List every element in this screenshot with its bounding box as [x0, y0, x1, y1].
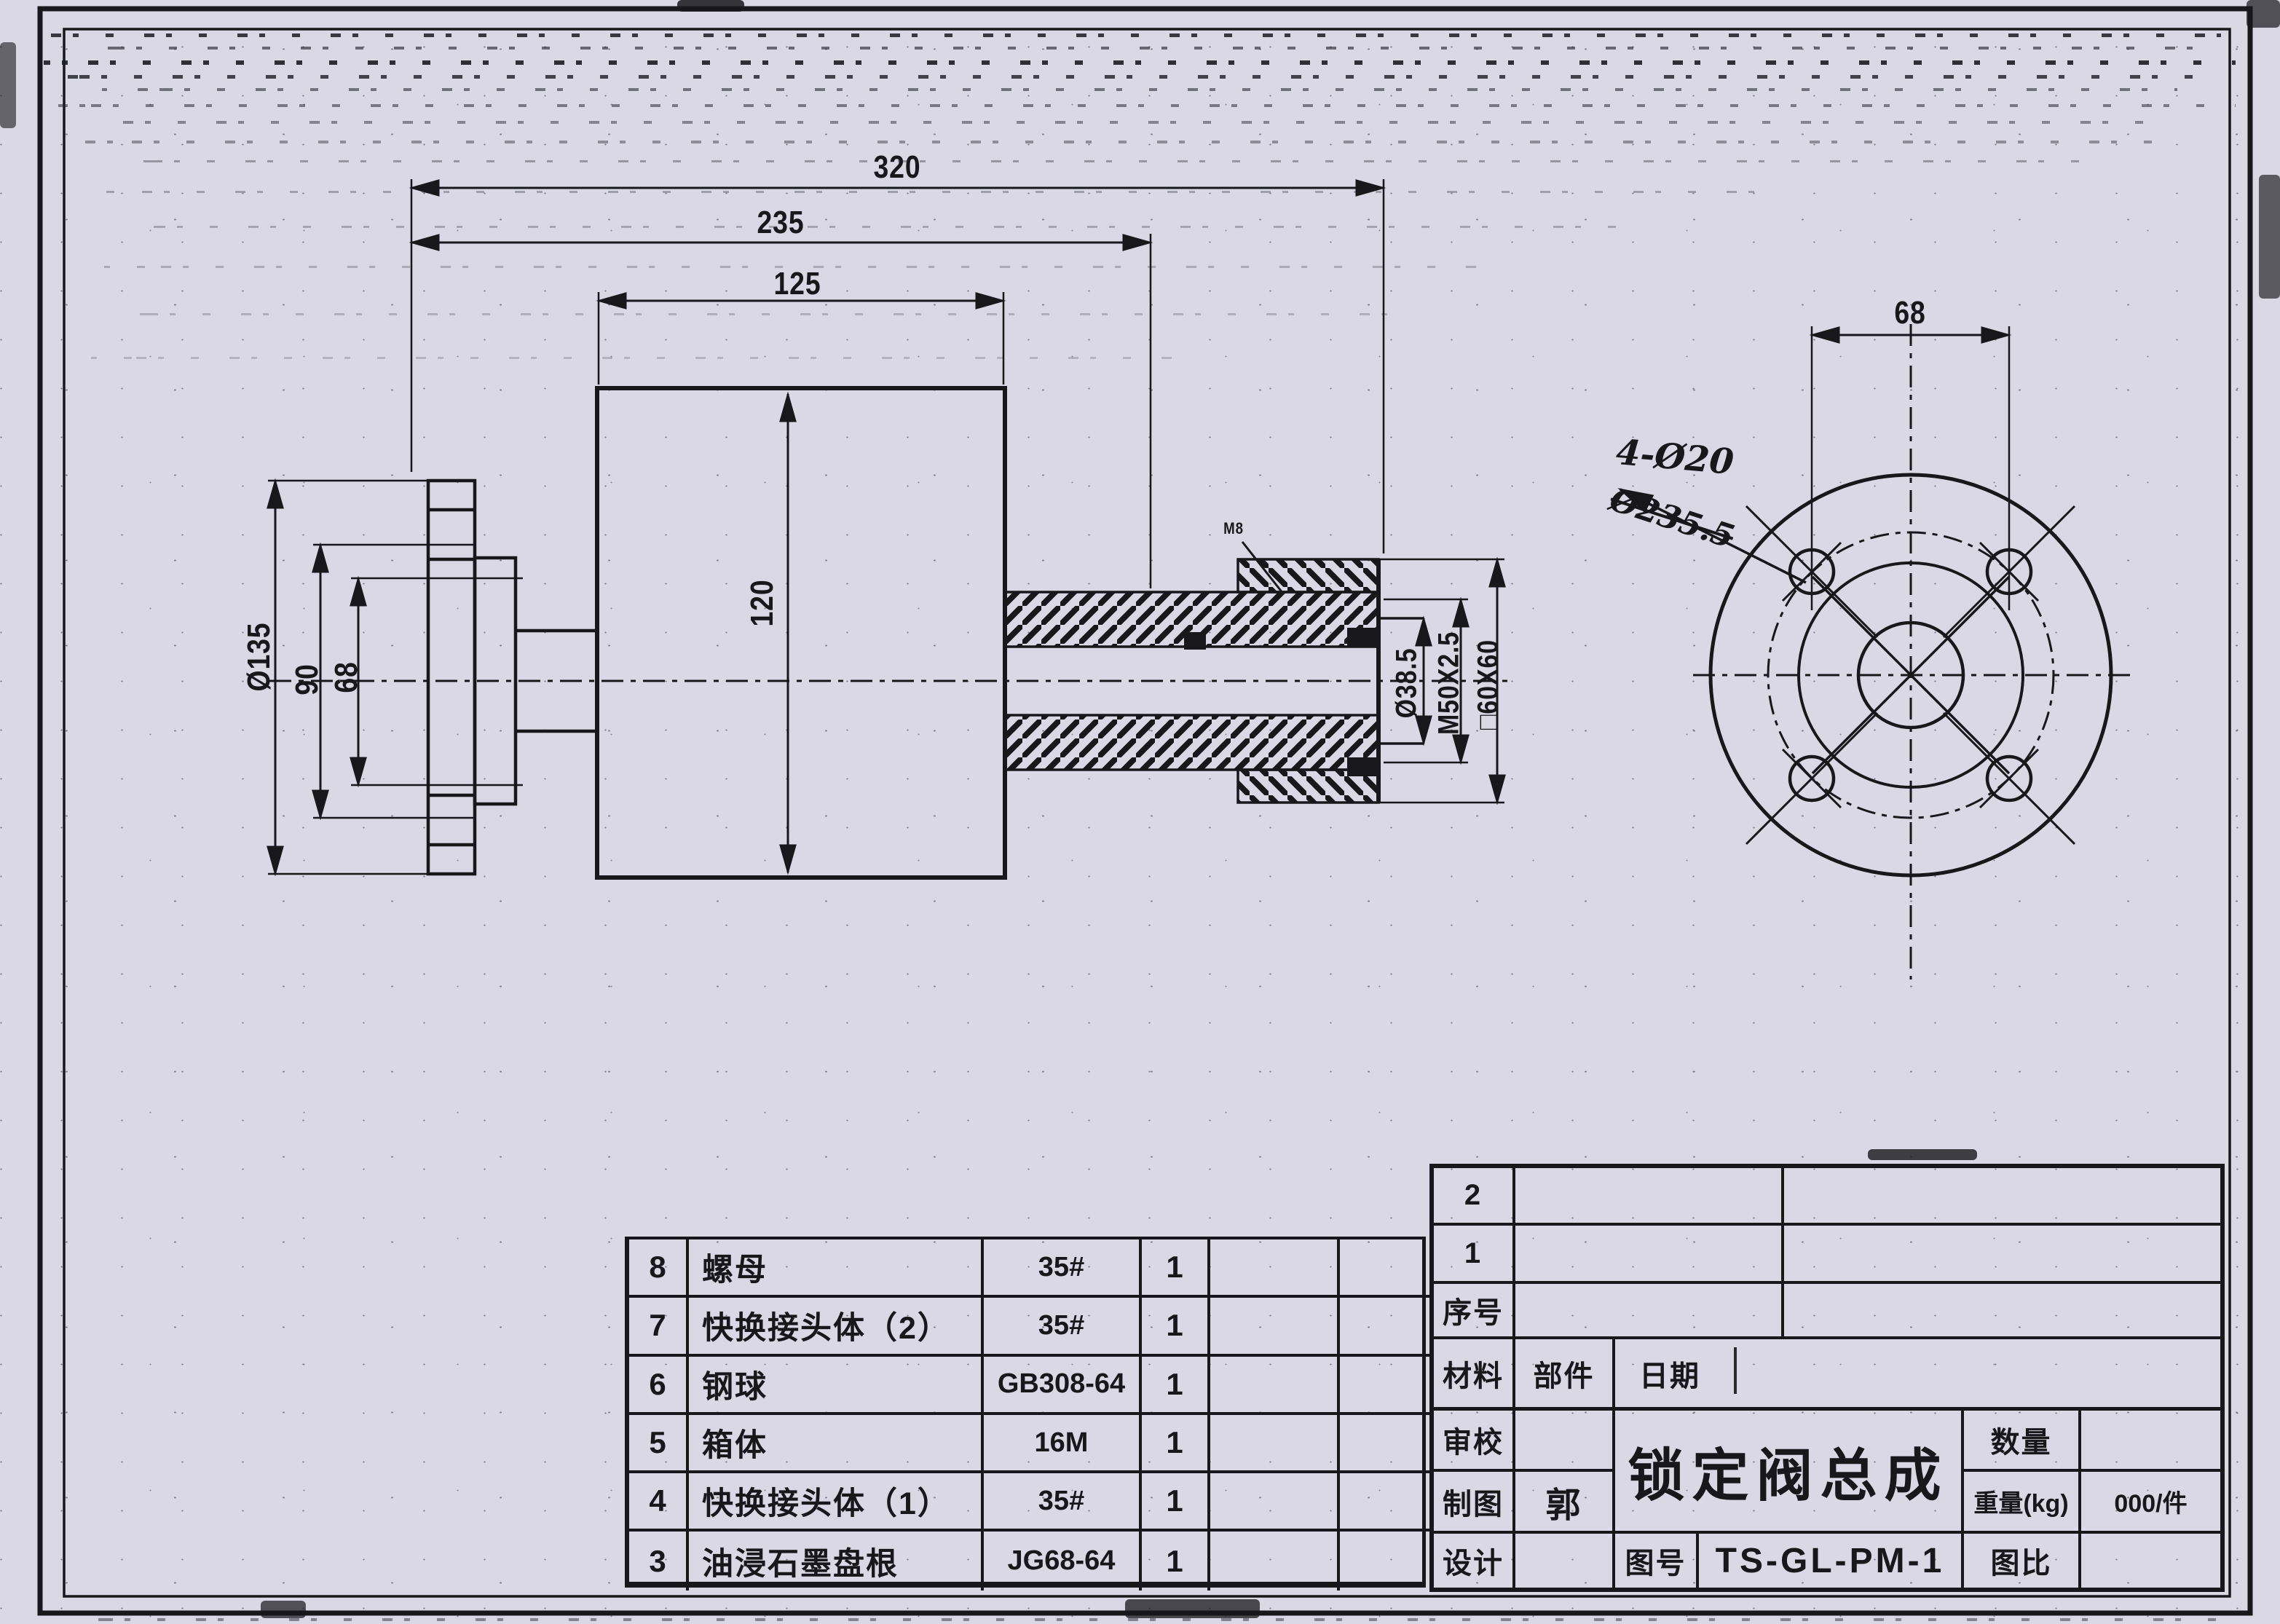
- part-qty: 1: [1142, 1532, 1210, 1590]
- part-no: 8: [629, 1239, 689, 1298]
- tb-part-label: 部件: [1515, 1339, 1612, 1407]
- part-name: 快换接头体（2）: [689, 1298, 984, 1356]
- part-blank: [1340, 1298, 1430, 1356]
- part-name: 钢球: [689, 1357, 984, 1415]
- dim-68-label: 68: [328, 661, 365, 693]
- tb-scale-label: 图比: [1964, 1534, 2078, 1588]
- part-no: 5: [629, 1415, 689, 1473]
- part-qty: 1: [1142, 1415, 1210, 1473]
- part-blank: [1340, 1473, 1430, 1532]
- dim-thread-label: M50X2.5: [1433, 631, 1466, 735]
- dim-flange-od-label: Ø135: [241, 623, 277, 692]
- part-qty: 1: [1142, 1473, 1210, 1532]
- drawing-title: 锁定阀总成: [1615, 1411, 1961, 1531]
- part-no: 4: [629, 1473, 689, 1532]
- tb-review-label: 审校: [1434, 1411, 1512, 1469]
- part-qty: 1: [1142, 1239, 1210, 1298]
- dim-320-label: 320: [874, 149, 921, 186]
- part-name: 快换接头体（1）: [689, 1473, 984, 1532]
- part-blank: [1340, 1532, 1430, 1590]
- part-name: 箱体: [689, 1415, 984, 1473]
- part-blank: [1210, 1357, 1340, 1415]
- tb-design-label: 设计: [1434, 1534, 1512, 1588]
- tb-qty-label: 数量: [1964, 1411, 2078, 1469]
- tb-drawing-no-label: 图号: [1615, 1534, 1696, 1588]
- valve-box-body: [597, 388, 1005, 878]
- tb-weight-label: 重量(kg): [1964, 1472, 2078, 1531]
- part-blank: [1210, 1415, 1340, 1473]
- part-name: 螺母: [689, 1239, 984, 1298]
- connector-assembly: [1005, 542, 1424, 803]
- part-no: 6: [629, 1357, 689, 1415]
- tb-draft-value: 郭: [1515, 1472, 1612, 1531]
- dim-hole-spacing-label: 68: [1894, 295, 1925, 331]
- title-block: 2 1 序号 材料 部件 日期 审校 制图 郭 设计 锁定阀总成 图号 TS-G…: [1429, 1164, 2225, 1592]
- part-name: 油浸石墨盘根: [689, 1532, 984, 1590]
- parts-list-table: 8 螺母 35# 1 7 快换接头体（2） 35# 1 6 钢球 GB308-6…: [625, 1237, 1426, 1588]
- dim-stub-bore-label: Ø38.5: [1391, 648, 1424, 719]
- part-spec: 35#: [984, 1239, 1142, 1298]
- part-no: 3: [629, 1532, 689, 1590]
- drawing-sheet: 320 235 125 120 Ø135 90 68 Ø38.5 M50X2.5…: [0, 0, 2280, 1624]
- dim-235-label: 235: [757, 205, 805, 241]
- part-blank: [1210, 1532, 1340, 1590]
- tb-weight-value: 000/件: [2081, 1472, 2220, 1531]
- left-flange-part: [428, 481, 597, 874]
- tb-date-label: 日期: [1615, 1339, 1724, 1407]
- tb-serial-label: 序号: [1434, 1284, 1512, 1336]
- part-qty: 1: [1142, 1357, 1210, 1415]
- part-spec: 16M: [984, 1415, 1142, 1473]
- part-qty: 1: [1142, 1298, 1210, 1356]
- part-spec: GB308-64: [984, 1357, 1142, 1415]
- dim-120-label: 120: [744, 580, 781, 627]
- part-blank: [1340, 1415, 1430, 1473]
- part-blank: [1210, 1473, 1340, 1532]
- part-spec: 35#: [984, 1473, 1142, 1532]
- part-spec: JG68-64: [984, 1532, 1142, 1590]
- dim-square-label: □60X60: [1472, 639, 1505, 730]
- tb-draft-label: 制图: [1434, 1472, 1512, 1531]
- part-blank: [1340, 1357, 1430, 1415]
- tb-drawing-no-value: TS-GL-PM-1: [1699, 1534, 1961, 1588]
- leader-note-label: M8: [1223, 519, 1244, 538]
- part-blank: [1340, 1239, 1430, 1298]
- part-blank: [1210, 1239, 1340, 1298]
- dim-90-label: 90: [289, 663, 326, 695]
- part-spec: 35#: [984, 1298, 1142, 1356]
- tb-material-label: 材料: [1434, 1339, 1512, 1407]
- date-handwritten-stroke: [1734, 1347, 1737, 1394]
- part-no: 7: [629, 1298, 689, 1356]
- part-blank: [1210, 1298, 1340, 1356]
- tb-row1: 1: [1434, 1226, 1512, 1281]
- dim-125-label: 125: [774, 266, 821, 302]
- centerlines: [269, 324, 2130, 979]
- tb-row2: 2: [1434, 1168, 1512, 1223]
